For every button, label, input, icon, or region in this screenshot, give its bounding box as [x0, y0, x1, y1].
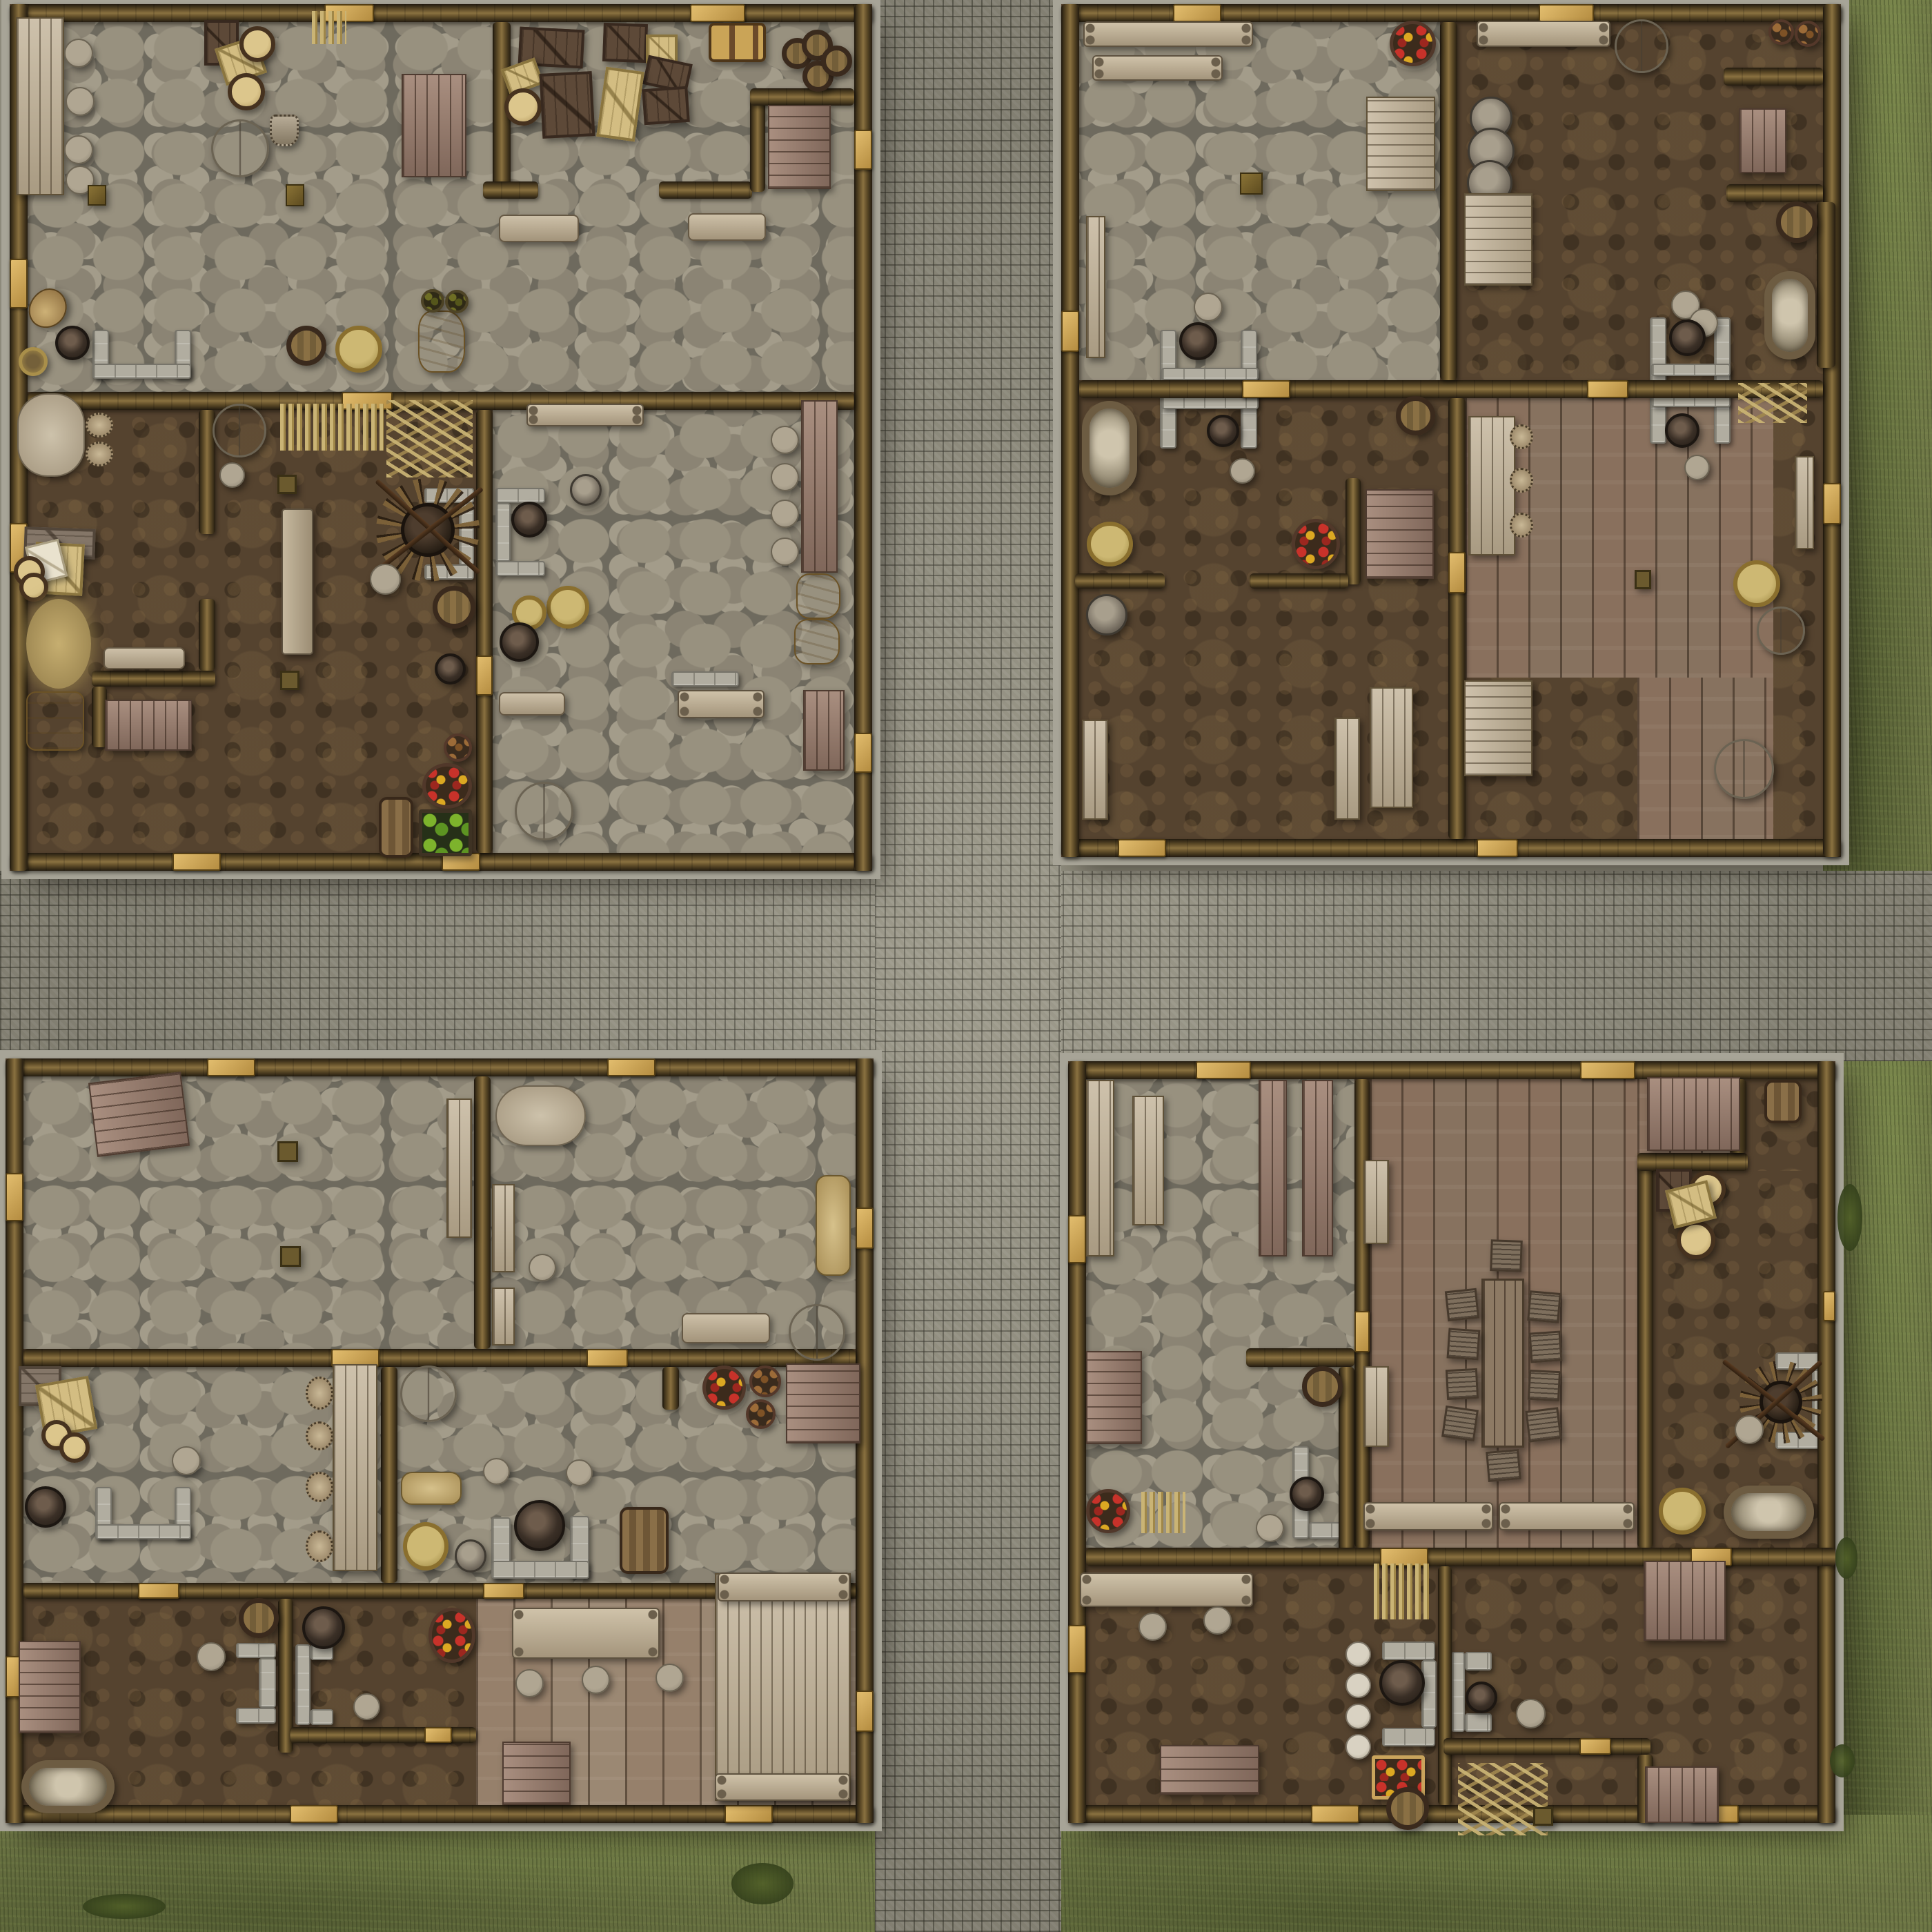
- prop-sticks: [1374, 1564, 1431, 1619]
- prop-plank-light-v: [16, 17, 64, 195]
- prop-crate-dark: [642, 86, 689, 125]
- door-opening: [1196, 1061, 1251, 1079]
- door-opening: [138, 1583, 179, 1599]
- stone-block: [310, 1709, 333, 1725]
- prop-hay: [26, 599, 91, 689]
- prop-basket-olives: [445, 290, 469, 313]
- stone-block: [236, 1643, 276, 1658]
- prop-fur-seat: [306, 1377, 333, 1410]
- prop-chair-sq: [1490, 1239, 1523, 1272]
- prop-plank-light-h: [1464, 680, 1532, 776]
- prop-lumber: [1738, 383, 1807, 423]
- prop-tray-gold: [335, 326, 382, 373]
- prop-basket-olives: [421, 289, 444, 313]
- door-opening: [1311, 1805, 1359, 1823]
- prop-stool: [172, 1446, 201, 1475]
- door-opening: [1587, 380, 1628, 398]
- wall-beam: [1448, 398, 1466, 839]
- road-vertical: [875, 0, 1061, 1932]
- prop-post: [280, 1246, 301, 1267]
- door-opening: [1823, 483, 1841, 524]
- prop-stool: [1516, 1699, 1546, 1728]
- prop-bowl-gray: [1086, 594, 1127, 635]
- prop-stool: [219, 462, 245, 488]
- prop-plank-red-v: [1739, 108, 1786, 173]
- prop-plank-red-h: [1160, 1745, 1259, 1795]
- prop-post: [277, 475, 297, 494]
- prop-stool-white: [1345, 1642, 1371, 1667]
- prop-bowl-dark: [25, 1486, 66, 1528]
- prop-plank-red-h: [502, 1742, 571, 1805]
- door-opening: [1061, 310, 1079, 352]
- prop-bush: [1835, 1537, 1857, 1579]
- prop-plank-red-h: [1366, 489, 1434, 579]
- prop-basin-brass: [1733, 560, 1780, 607]
- wall-beam: [381, 1367, 397, 1583]
- door-opening: [607, 1058, 655, 1076]
- prop-round-table: [1714, 739, 1774, 799]
- wall-beam: [1075, 573, 1165, 589]
- prop-table-light-h: [715, 1773, 850, 1801]
- door-opening: [690, 4, 745, 22]
- door-opening: [1579, 1738, 1611, 1755]
- door-opening: [1580, 1061, 1635, 1079]
- door-opening: [1539, 4, 1594, 22]
- door-opening: [1068, 1215, 1086, 1263]
- prop-round-table: [1615, 19, 1668, 73]
- wall-beam: [659, 181, 752, 199]
- prop-plank-red-v: [1302, 1080, 1333, 1256]
- prop-table-light-h: [1477, 21, 1610, 47]
- prop-barrel-top: [239, 1598, 279, 1638]
- prop-tub-v: [1082, 401, 1137, 495]
- prop-barrel-top: [1386, 1787, 1429, 1830]
- prop-post: [277, 1141, 298, 1162]
- stone-block: [1651, 364, 1731, 376]
- prop-stool: [771, 538, 799, 566]
- prop-fur-seat: [306, 1472, 333, 1502]
- prop-stool: [771, 500, 799, 528]
- prop-plank-red-v: [803, 690, 845, 771]
- prop-basket-nuts: [749, 1366, 781, 1397]
- prop-plank-light-v: [333, 1364, 377, 1571]
- prop-round-table: [515, 782, 573, 840]
- stone-block: [1161, 368, 1259, 380]
- prop-rug-oval: [495, 1085, 586, 1146]
- prop-chair-sq: [1525, 1407, 1561, 1443]
- prop-basin-brass: [1087, 522, 1133, 566]
- prop-stool: [515, 1669, 544, 1697]
- prop-barrel-top: [1396, 396, 1435, 435]
- prop-bench: [499, 215, 579, 242]
- prop-bench: [499, 692, 565, 716]
- prop-fur-seat: [1510, 468, 1533, 493]
- prop-round-table: [213, 404, 266, 457]
- prop-sack: [794, 619, 840, 664]
- wall-beam: [199, 599, 215, 671]
- wall-beam: [1637, 1153, 1748, 1171]
- prop-chair-sq: [1446, 1368, 1479, 1400]
- prop-post: [1635, 570, 1651, 589]
- grass-patch: [1823, 1061, 1932, 1932]
- prop-bench-v: [492, 1288, 515, 1345]
- prop-basket-apples: [1292, 519, 1340, 569]
- prop-barrel-side-v: [620, 1507, 669, 1574]
- prop-lumber: [386, 400, 473, 477]
- prop-chair-sq: [1527, 1290, 1561, 1323]
- stone-block: [95, 1524, 191, 1539]
- stone-block: [1465, 1652, 1492, 1670]
- prop-table-light-h: [1092, 55, 1223, 81]
- prop-stool: [197, 1642, 226, 1671]
- prop-bench: [688, 213, 766, 241]
- prop-pouch: [286, 184, 304, 206]
- prop-post: [280, 671, 299, 690]
- prop-cauldron: [1669, 319, 1706, 356]
- battle-map-canvas: [0, 0, 1932, 1932]
- prop-basket-nuts: [444, 733, 472, 762]
- prop-stool: [1203, 1606, 1232, 1635]
- wall-beam: [1823, 4, 1841, 857]
- prop-cauldron-big: [514, 1500, 565, 1551]
- prop-plank-light-v: [1082, 720, 1108, 820]
- prop-plank-light-h: [1464, 193, 1532, 286]
- prop-chair-sq: [1441, 1406, 1479, 1441]
- prop-chair-sq: [1445, 1288, 1479, 1322]
- door-opening: [1118, 839, 1166, 857]
- prop-stool: [1230, 458, 1255, 484]
- prop-basin-brass: [403, 1522, 448, 1570]
- prop-barrel-tan: [228, 73, 265, 110]
- prop-plank-light-v: [1334, 718, 1360, 820]
- door-opening: [424, 1727, 452, 1743]
- door-opening: [724, 1805, 773, 1823]
- wall-beam: [1061, 4, 1079, 857]
- prop-bush: [1837, 1184, 1862, 1251]
- door-opening: [856, 1207, 874, 1249]
- prop-table-thin-v: [282, 509, 313, 655]
- stone-block: [236, 1708, 276, 1724]
- door-opening: [854, 130, 872, 170]
- wall-beam: [1817, 202, 1835, 368]
- prop-post: [1533, 1807, 1553, 1826]
- stone-block: [1382, 1728, 1435, 1746]
- prop-sack: [418, 310, 465, 373]
- prop-tub-h: [1724, 1486, 1814, 1539]
- wall-beam: [476, 410, 493, 853]
- prop-plank-light-v: [715, 1573, 851, 1801]
- prop-stool-white: [1345, 1734, 1371, 1759]
- stone-block: [1382, 1642, 1435, 1660]
- prop-plank-light-v: [1370, 687, 1413, 808]
- prop-stool: [1684, 455, 1710, 480]
- prop-barrel-tan: [504, 88, 542, 126]
- prop-bench-v: [1363, 1160, 1389, 1244]
- stone-block: [495, 561, 545, 576]
- prop-stool: [771, 426, 799, 454]
- prop-chair-sq: [1529, 1330, 1563, 1363]
- prop-basket-apples: [702, 1366, 746, 1410]
- prop-cushion-v: [816, 1175, 851, 1276]
- wall-beam: [6, 1058, 874, 1076]
- prop-stool: [529, 1254, 556, 1281]
- prop-rug-oval: [17, 393, 85, 477]
- prop-round-table: [1757, 607, 1805, 655]
- stone-block: [495, 488, 545, 503]
- prop-plank-red-v: [1647, 1077, 1740, 1151]
- door-opening: [10, 259, 28, 308]
- prop-tray-gold: [546, 586, 589, 629]
- door-opening: [1068, 1625, 1086, 1673]
- prop-bowl-dark: [1665, 413, 1699, 448]
- wall-beam: [23, 1349, 856, 1367]
- door-opening: [1354, 1311, 1370, 1352]
- prop-barrel-tan: [19, 573, 48, 602]
- prop-table-light-h: [678, 690, 765, 718]
- door-opening: [483, 1583, 524, 1599]
- prop-stool: [771, 463, 799, 491]
- prop-cauldron: [55, 326, 90, 360]
- prop-stool: [1138, 1613, 1167, 1641]
- prop-table-light-h: [718, 1573, 850, 1601]
- prop-sticks: [312, 11, 346, 44]
- door-opening: [6, 1173, 23, 1221]
- prop-stool-white: [1345, 1673, 1371, 1698]
- prop-table-light-h: [1499, 1502, 1635, 1530]
- stone-block: [259, 1658, 276, 1708]
- prop-chair-sq: [1528, 1370, 1561, 1401]
- wall-beam: [1443, 1738, 1650, 1755]
- prop-fur-seat: [86, 442, 113, 466]
- prop-table-light-h: [1083, 21, 1253, 47]
- wall-beam: [1724, 68, 1823, 86]
- prop-barrel-top: [433, 586, 475, 629]
- stone-block: [491, 1561, 589, 1579]
- prop-bench-v: [1795, 456, 1814, 549]
- prop-plank-red-v: [105, 700, 192, 751]
- prop-bench-v: [1086, 216, 1105, 358]
- prop-basket-apples: [428, 1608, 475, 1663]
- prop-bowl-dark: [435, 653, 466, 684]
- prop-pouch: [88, 185, 106, 206]
- door-opening: [1173, 4, 1221, 22]
- wall-beam: [1079, 380, 1823, 398]
- door-opening: [207, 1058, 255, 1076]
- wall-beam: [1345, 478, 1361, 584]
- wall-beam: [1438, 1566, 1452, 1805]
- wall-beam: [474, 1076, 491, 1349]
- prop-cauldron-big: [1379, 1660, 1425, 1706]
- prop-fur-seat: [1510, 424, 1533, 449]
- wall-beam: [662, 1367, 679, 1410]
- prop-basket-apples: [1390, 21, 1436, 66]
- prop-stool: [1735, 1415, 1764, 1444]
- prop-bench-v: [492, 1184, 515, 1272]
- wall-beam: [750, 88, 854, 106]
- prop-table-light-h: [1363, 1502, 1493, 1530]
- stone-block: [92, 364, 191, 379]
- prop-table-light-h: [1080, 1573, 1253, 1607]
- stone-block: [1465, 1713, 1492, 1732]
- prop-crate-dark: [540, 71, 595, 139]
- prop-bowl-dark: [1290, 1477, 1324, 1511]
- prop-plank-red-h: [786, 1363, 860, 1443]
- prop-round-table: [211, 119, 269, 177]
- prop-cushion-h: [401, 1472, 462, 1505]
- prop-round-table: [400, 1366, 457, 1422]
- wall-beam: [1637, 1153, 1653, 1548]
- prop-bowl-gray: [570, 474, 602, 506]
- prop-plank-light-h: [1366, 97, 1435, 191]
- prop-stool: [66, 87, 95, 116]
- prop-plank-light-v: [1132, 1096, 1164, 1225]
- prop-fur-seat: [306, 1530, 333, 1562]
- prop-barrel-side-v: [379, 797, 413, 858]
- prop-chair-sq: [1486, 1449, 1521, 1482]
- prop-basket-nuts: [746, 1399, 776, 1429]
- prop-fur-bucket: [270, 115, 299, 146]
- prop-barrel-top: [286, 326, 326, 366]
- door-opening: [476, 655, 493, 696]
- prop-chest: [709, 23, 766, 62]
- prop-bowl-dark: [500, 622, 539, 662]
- prop-sack: [796, 573, 840, 619]
- prop-plank-red-h: [768, 105, 831, 189]
- prop-basket-nuts: [1795, 21, 1821, 47]
- prop-stool: [353, 1693, 380, 1720]
- stone-block: [495, 503, 511, 562]
- prop-bush: [83, 1894, 166, 1919]
- prop-stool: [655, 1664, 684, 1692]
- prop-fur-seat: [306, 1421, 333, 1450]
- door-opening: [1242, 380, 1290, 398]
- prop-table-light-h: [526, 404, 644, 426]
- prop-barrel-top: [1302, 1366, 1343, 1407]
- prop-basket-apples: [422, 763, 472, 809]
- prop-barrel-side-v: [1764, 1080, 1802, 1123]
- stone-block: [295, 1644, 310, 1725]
- prop-barrel-tan: [59, 1432, 90, 1463]
- prop-bowl-gray: [455, 1539, 486, 1573]
- prop-basin-brass: [1659, 1488, 1706, 1535]
- door-opening: [172, 853, 221, 871]
- prop-basket-nuts: [1768, 19, 1794, 45]
- prop-bench-v: [1363, 1366, 1389, 1447]
- prop-crate-dark: [602, 23, 648, 63]
- prop-pouch: [1240, 172, 1263, 195]
- prop-plank-red-v: [1645, 1766, 1719, 1823]
- prop-chair-sq: [1447, 1328, 1481, 1360]
- stone-block: [1421, 1660, 1437, 1728]
- wall-beam: [1068, 1061, 1086, 1823]
- wall-beam: [1246, 1348, 1354, 1367]
- wall-beam: [1250, 573, 1348, 589]
- prop-bush: [1830, 1744, 1855, 1777]
- door-opening: [1448, 552, 1466, 593]
- prop-stool: [64, 135, 93, 164]
- door-opening: [854, 733, 872, 773]
- prop-stool: [370, 564, 401, 595]
- prop-sticks: [1141, 1492, 1185, 1533]
- stone-block: [671, 671, 739, 687]
- prop-sack-bed: [26, 691, 84, 751]
- prop-plank-red-v: [1259, 1080, 1287, 1256]
- prop-barrel-top: [1776, 201, 1817, 243]
- prop-plank-light-v: [1086, 1080, 1114, 1256]
- prop-bench-v: [446, 1098, 472, 1238]
- prop-plank-red-h: [88, 1072, 190, 1157]
- prop-plank-red-v: [402, 74, 466, 177]
- prop-stool-white: [1345, 1704, 1371, 1729]
- prop-bench: [103, 647, 185, 669]
- prop-plank-red-h: [19, 1641, 81, 1733]
- door-opening: [1477, 839, 1518, 857]
- wall-beam: [92, 671, 215, 687]
- prop-table-light-h: [512, 1608, 660, 1659]
- prop-plate-gold: [19, 347, 48, 376]
- prop-stool: [566, 1459, 593, 1486]
- prop-crate-cabbage: [419, 809, 472, 856]
- prop-bench: [682, 1313, 770, 1343]
- prop-bowl-dark: [1466, 1682, 1497, 1713]
- prop-bowl-dark: [302, 1606, 345, 1649]
- prop-basket-apples: [1086, 1489, 1130, 1533]
- door-opening: [1823, 1291, 1835, 1321]
- door-opening: [586, 1349, 628, 1367]
- wall-beam: [1440, 22, 1457, 380]
- prop-cauldron: [1179, 322, 1217, 360]
- prop-stool: [1194, 293, 1223, 322]
- prop-bush: [731, 1863, 793, 1904]
- prop-stool: [64, 39, 93, 68]
- wall-beam: [1061, 839, 1841, 857]
- prop-cauldron: [511, 502, 547, 538]
- prop-bowl-dark: [1207, 415, 1239, 447]
- prop-plank-light-v: [1468, 416, 1515, 555]
- prop-round-table: [789, 1304, 845, 1361]
- prop-fur-seat: [86, 413, 113, 437]
- stone-block: [1451, 1652, 1465, 1732]
- prop-plank-red-v: [1644, 1561, 1726, 1641]
- prop-stool: [483, 1458, 510, 1485]
- door-opening: [290, 1805, 338, 1823]
- prop-fur-seat: [1510, 513, 1533, 538]
- prop-plank-red-v: [801, 400, 838, 573]
- prop-barrel-top: [821, 46, 852, 77]
- wall-beam: [483, 181, 538, 199]
- prop-sticks: [280, 404, 384, 451]
- prop-tub-h: [21, 1760, 115, 1813]
- door-opening: [856, 1690, 874, 1732]
- prop-stool: [1256, 1514, 1284, 1542]
- prop-barrel-tan: [239, 26, 275, 62]
- prop-dining-table: [1481, 1279, 1524, 1448]
- prop-stool: [582, 1666, 610, 1694]
- wall-beam: [1726, 184, 1823, 202]
- prop-plank-red-h: [1086, 1351, 1142, 1444]
- prop-tub-v: [1764, 271, 1815, 359]
